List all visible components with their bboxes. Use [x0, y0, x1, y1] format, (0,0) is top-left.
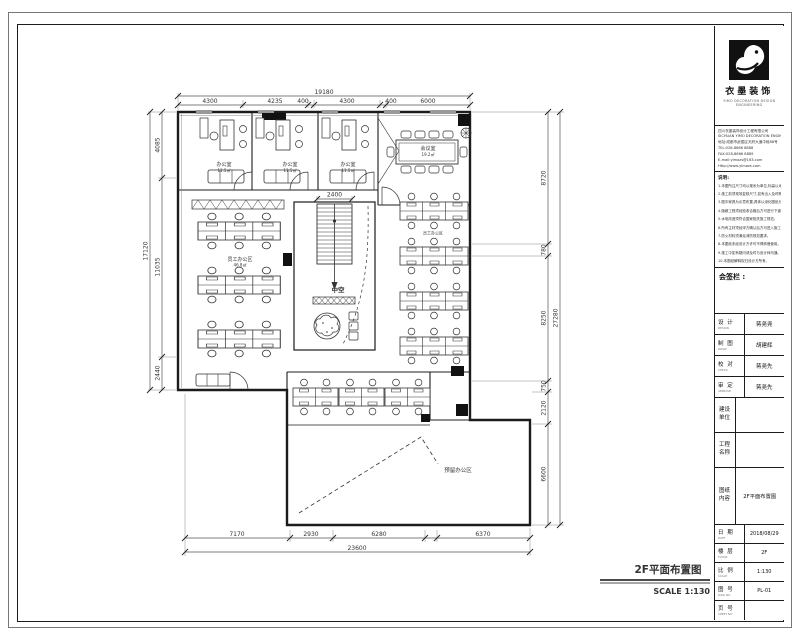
meta-value	[745, 601, 784, 619]
role-value: 蒋尧先	[745, 356, 784, 376]
staff-area-size: 46.8㎡	[234, 262, 247, 268]
plant	[314, 313, 340, 339]
office3-label: 办公室	[340, 161, 355, 168]
staff-area-label-2: 员工办公区	[423, 230, 443, 236]
meta-value: 1:130	[745, 563, 784, 581]
note-line: 4.隐蔽工程须经验收合格后方可进行下道工序。	[718, 207, 781, 215]
reserved-area: 预留办公区	[299, 437, 472, 513]
role-value: 蒋尧尧	[745, 314, 784, 334]
void-label: 中空	[332, 285, 346, 294]
office1-area: 11.5㎡	[218, 167, 231, 173]
company-logo	[729, 40, 769, 80]
svg-text:4235: 4235	[267, 98, 282, 105]
project-row-value	[736, 433, 784, 467]
note-line: 2.施工前须现场复核尺寸,如有出入及时联系设计师。	[718, 190, 781, 198]
personnel-row: 校 对CHECK 蒋尧先	[715, 356, 784, 377]
drawing-title-block: 2F平面布置图 SCALE 1:130	[600, 563, 710, 596]
dimension-chain-top: 4300 4235 400 4300 400 6000 19180	[175, 89, 473, 110]
drawing-title: 2F平面布置图	[635, 563, 702, 576]
notes-section: 说明: 1.本图所注尺寸均以毫米为单位,标高以米为单位。 2.施工前须现场复核尺…	[715, 172, 784, 268]
reserved-area-label: 预留办公区	[444, 466, 472, 474]
dimension-chain-bottom: 7170 2930 6280 6370 23600	[182, 394, 533, 556]
title-block: 衣墨装饰 YIMO DECORATION DESIGN ENGINEERING …	[714, 26, 784, 620]
meta-sub: DWG NO	[718, 593, 744, 597]
company-info: 四川衣墨装饰设计工程有限公司 SICHUAN YIMO DECORATION E…	[715, 126, 784, 172]
corner-plant	[461, 128, 471, 138]
drawing-scale: SCALE 1:130	[653, 587, 710, 596]
personnel-row: 设 计DESIGN 蒋尧尧	[715, 314, 784, 335]
dimension-chain-left: 4085 11035 2440 17120	[143, 109, 177, 393]
svg-text:750: 750	[541, 380, 548, 392]
note-line: 5.水电改造须符合国家相关施工规范。	[718, 215, 781, 223]
svg-text:7170: 7170	[229, 531, 244, 538]
project-row: 工程名称	[715, 433, 784, 468]
meta-value: 2018/08/29	[745, 525, 784, 543]
meta-sub: DATE	[718, 536, 744, 540]
office1-label: 办公室	[216, 161, 231, 168]
role-sub: APPROVE	[718, 389, 744, 393]
stair-dimension: 2400	[327, 192, 342, 199]
right-open-office: 员工办公区	[400, 193, 468, 364]
project-row-label: 建设单位	[715, 398, 736, 432]
svg-text:2120: 2120	[541, 400, 548, 415]
svg-text:4300: 4300	[202, 98, 217, 105]
meta-value: 2F	[745, 544, 784, 562]
meta-sub: FLOOR	[718, 555, 744, 559]
svg-text:19180: 19180	[314, 89, 333, 96]
role-label: 制 图	[718, 339, 744, 347]
bottom-workstations	[293, 379, 430, 415]
svg-text:400: 400	[297, 98, 309, 105]
meeting-room-label: 会议室	[420, 145, 435, 152]
project-row: 图纸内容 2F平面布置图	[715, 468, 784, 524]
project-row-label: 工程名称	[715, 433, 736, 467]
company-name: 衣墨装饰	[715, 84, 784, 97]
role-label: 审 定	[718, 381, 744, 389]
svg-text:780: 780	[541, 244, 548, 256]
notes-title: 说明:	[718, 175, 781, 181]
svg-text:6600: 6600	[541, 466, 548, 481]
note-line: 6.所有主材须经甲方确认后方可进入施工。	[718, 224, 781, 232]
project-row: 建设单位	[715, 398, 784, 433]
company-info-line: Http://www.yimozs.com	[718, 164, 781, 170]
brand-section: 衣墨装饰 YIMO DECORATION DESIGN ENGINEERING	[715, 26, 784, 126]
role-label: 设 计	[718, 318, 744, 326]
meta-sub: SCALE	[718, 574, 744, 578]
personnel-row: 制 图DRAW 胡建辉	[715, 335, 784, 356]
office2-area: 11.5㎡	[284, 167, 297, 173]
svg-text:8250: 8250	[541, 310, 548, 325]
note-line: 9.施工中如有疑问请及时与设计师沟通。	[718, 249, 781, 257]
meta-label: 比 例	[718, 566, 744, 574]
svg-text:4300: 4300	[339, 98, 354, 105]
svg-text:23600: 23600	[347, 545, 366, 552]
meta-row: 日 期DATE 2018/08/29	[715, 525, 784, 544]
meta-value: PL-01	[745, 582, 784, 600]
note-line: 8.本图纸未经设计方许可不得转借使用。	[718, 240, 781, 248]
role-value: 蒋尧先	[745, 377, 784, 397]
company-tagline: YIMO DECORATION DESIGN ENGINEERING	[715, 99, 784, 107]
meta-sub: SHEET NO	[718, 612, 744, 616]
svg-text:27280: 27280	[553, 308, 560, 327]
svg-text:6000: 6000	[420, 98, 435, 105]
project-row-value: 2F平面布置图	[736, 468, 784, 524]
meta-label: 日 期	[718, 528, 744, 536]
meta-row: 楼 层FLOOR 2F	[715, 544, 784, 563]
note-line: 3.图中家具为示意布置,具体以深化图纸为准。	[718, 198, 781, 206]
role-value: 胡建辉	[745, 335, 784, 355]
dimension-chain-right: 8720 780 8250 750 2120 6600 27280	[472, 109, 564, 528]
project-row-value	[736, 398, 784, 432]
note-line: 7.防火材料须满足消防规范要求。	[718, 232, 781, 240]
conference-room: 会议室 19.2㎡	[378, 118, 471, 184]
waiting-chairs	[349, 312, 358, 340]
private-offices: 办公室 11.5㎡ 办公室 11.5㎡ 办公室 11.5㎡	[200, 118, 369, 183]
meta-row: 比 例SCALE 1:130	[715, 563, 784, 582]
role-label: 校 对	[718, 360, 744, 368]
svg-text:400: 400	[385, 98, 397, 105]
project-row-label: 图纸内容	[715, 468, 736, 524]
svg-text:11035: 11035	[155, 257, 162, 276]
svg-text:8720: 8720	[541, 170, 548, 185]
office2-label: 办公室	[282, 161, 297, 168]
meta-label: 页 号	[718, 604, 744, 612]
note-line: 1.本图所注尺寸均以毫米为单位,标高以米为单位。	[718, 182, 781, 190]
meta-table: 日 期DATE 2018/08/29 楼 层FLOOR 2F 比 例SCALE …	[715, 525, 784, 620]
svg-text:2440: 2440	[155, 365, 162, 380]
eagle-logo-icon	[729, 40, 769, 80]
left-open-office: 员工办公区 46.8㎡	[192, 200, 284, 386]
meta-row: 页 号SHEET NO	[715, 601, 784, 619]
meta-label: 图 号	[718, 585, 744, 593]
office3-area: 11.5㎡	[342, 167, 355, 173]
svg-text:17120: 17120	[143, 241, 150, 260]
svg-text:4085: 4085	[155, 137, 162, 152]
meta-row: 图 号DWG NO PL-01	[715, 582, 784, 601]
note-line: 10.本图纸解释权归设计方所有。	[718, 257, 781, 265]
svg-text:6280: 6280	[371, 531, 386, 538]
role-sub: CHECK	[718, 368, 744, 372]
svg-text:2930: 2930	[303, 531, 318, 538]
role-sub: DESIGN	[718, 326, 744, 330]
meta-label: 楼 层	[718, 547, 744, 555]
staircase: 2400 中空	[313, 192, 368, 347]
drawing-sheet: 2400 中空 办公室 11.5㎡ 办公室 11.5㎡ 办公室 11.5㎡	[0, 0, 800, 640]
svg-text:6370: 6370	[475, 531, 490, 538]
meeting-room-area: 19.2㎡	[422, 151, 435, 157]
personnel-row: 审 定APPROVE 蒋尧先	[715, 377, 784, 397]
role-sub: DRAW	[718, 347, 744, 351]
personnel-table: 设 计DESIGN 蒋尧尧 制 图DRAW 胡建辉 校 对CHECK 蒋尧先 审…	[715, 314, 784, 398]
signature-section: 会签栏 :	[715, 268, 784, 314]
project-info-table: 建设单位 工程名称 图纸内容 2F平面布置图	[715, 398, 784, 525]
floor-plan: 2400 中空 办公室 11.5㎡ 办公室 11.5㎡ 办公室 11.5㎡	[17, 25, 714, 621]
